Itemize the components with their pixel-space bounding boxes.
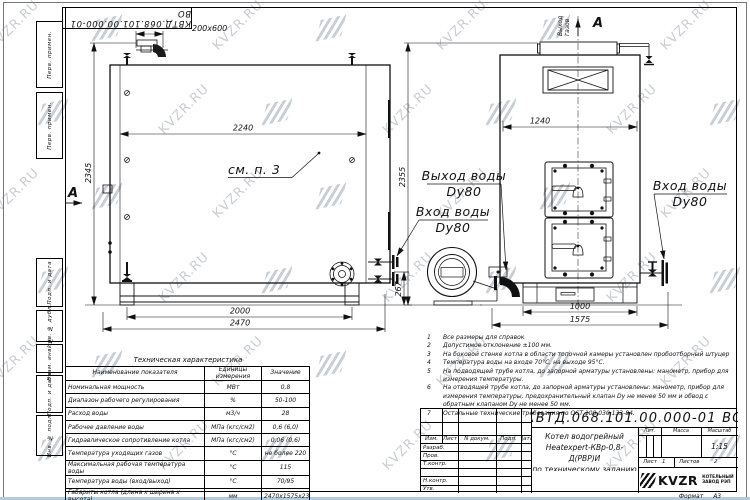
sign-razrab: Разраб. bbox=[423, 445, 457, 451]
sheets-label: Листов bbox=[679, 459, 700, 465]
stamp-vzam-inv: Взам. инв. № bbox=[36, 344, 63, 373]
lit-label: Лит. bbox=[638, 427, 661, 435]
scale-value: 1:15 bbox=[701, 435, 738, 457]
company-name: КОТЕЛЬНЫЙ ЗАВОД РЭП bbox=[702, 475, 734, 486]
sheet-label: Лист bbox=[643, 459, 657, 465]
stamp-podp-data-2: Подп. и дата bbox=[36, 375, 63, 413]
format-label: Формат bbox=[679, 493, 703, 500]
company-cell: KVZR КОТЕЛЬНЫЙ ЗАВОД РЭП bbox=[640, 469, 736, 491]
sign-nkontr: Н.контр. bbox=[423, 478, 457, 484]
rev-col-list: Лист bbox=[442, 435, 458, 443]
sheet-value: 1 bbox=[662, 459, 666, 465]
corner-doc-number: КВТД.068.101.00.000-01 ВО bbox=[63, 8, 191, 28]
spec-table-title: Техническая характеристика bbox=[66, 356, 310, 364]
note-item: 5На подводящей трубе котла, до запорной … bbox=[427, 368, 735, 385]
spec-row: Рабочее давление водыМПа (кгс/см2)0,6 (6… bbox=[66, 420, 310, 433]
technical-notes: 1Все размеры для справок 2Допустимое отк… bbox=[427, 334, 735, 418]
rev-col-izm: Изм. bbox=[421, 435, 442, 443]
corner-stamp: КВТД.068.101.00.000-01 ВО bbox=[62, 7, 192, 29]
format-value: А3 bbox=[713, 493, 721, 500]
stamp-podp-data-1: Подп. и дата bbox=[36, 258, 63, 307]
spec-row: Гидравлическое сопротивление котлаМПа (к… bbox=[66, 434, 310, 447]
note-item: 6На отводящей трубе котла, до запорной а… bbox=[427, 384, 735, 409]
format-note: ФорматА3 bbox=[640, 493, 750, 500]
rev-col-dokum: N докум. bbox=[458, 435, 496, 443]
doc-number: КВТД.068.101.00.000-01 ВО bbox=[531, 409, 738, 427]
mass-label: Масса bbox=[661, 427, 701, 435]
kvzr-logo-text: KVZR bbox=[658, 473, 698, 488]
stamp-perv-primen-1: Перв. примен. bbox=[36, 21, 63, 88]
kvzr-logo-icon bbox=[640, 473, 657, 488]
rev-col-data: Дата bbox=[521, 435, 531, 443]
title-block: Изм. Лист N докум. Подп. Дата Разраб. Пр… bbox=[420, 408, 737, 492]
spec-row: Температура воды (вход/выход)°С70/95 bbox=[66, 475, 310, 488]
spec-header-row: Наименование показателя Единицы измерени… bbox=[66, 367, 310, 381]
sign-utv: Утв. bbox=[423, 486, 457, 492]
spec-row: Максимальная рабочая температура воды°С1… bbox=[66, 460, 310, 475]
sign-prov: Пров. bbox=[423, 453, 457, 459]
spec-row: Температура уходящих газов°Сне более 220 bbox=[66, 447, 310, 460]
note-item: 2Допустимое отклонение ±100 мм. bbox=[427, 342, 735, 350]
spec-row: Габариты котла (длина х ширина х высота)… bbox=[66, 489, 310, 500]
spec-row: Расход водым3/ч28 bbox=[66, 407, 310, 420]
product-title: Котел водогрейный Heatexpert-КВр-0,8-Д(Р… bbox=[532, 431, 637, 471]
drawing-sheet: KVZR.RUKVZR.RUKVZR.RUKVZR.RUKVZR.RUKVZR.… bbox=[0, 0, 750, 500]
sheets-value: 2 bbox=[714, 459, 718, 465]
scale-label: Масштаб bbox=[701, 427, 738, 435]
stamp-inv-podl: Инв. № подл. bbox=[36, 415, 63, 456]
spec-row: Номинальная мощностьМВт0,8 bbox=[66, 381, 310, 394]
spec-row: Диапазон рабочего регулирования%50-100 bbox=[66, 394, 310, 407]
note-item: 1Все размеры для справок bbox=[427, 334, 735, 342]
note-item: 4Температура воды на входе 70°С, на выхо… bbox=[427, 359, 735, 367]
spec-table: Наименование показателя Единицы измерени… bbox=[65, 366, 310, 500]
rev-col-podp: Подп. bbox=[496, 435, 521, 443]
stamp-perv-primen-2: Перв. примен. bbox=[36, 92, 63, 159]
sign-tkontr: Т.контр. bbox=[423, 461, 457, 467]
note-item: 3На боковой стенке котла в области топоч… bbox=[427, 351, 735, 359]
